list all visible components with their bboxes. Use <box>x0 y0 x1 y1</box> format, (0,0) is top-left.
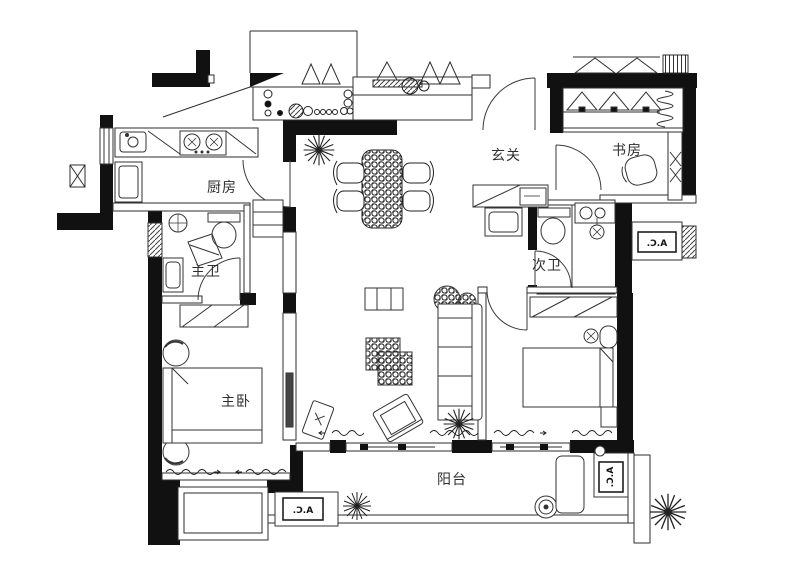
lounge-chair <box>372 393 424 442</box>
dining-chair <box>337 163 364 183</box>
room-label-master-bath: 主卫 <box>191 264 221 280</box>
toilet-icon <box>538 208 570 217</box>
second-bath-fixtures <box>485 203 615 288</box>
dining-chair <box>337 191 364 211</box>
dining-chair <box>403 191 430 211</box>
dining-chair <box>403 163 430 183</box>
side-table <box>302 400 334 439</box>
chair <box>600 326 617 348</box>
plant-icon <box>304 135 335 166</box>
master-bedroom-furniture <box>163 305 262 465</box>
wardrobe <box>530 297 617 317</box>
study-door <box>556 145 601 190</box>
plant-icon <box>343 492 371 520</box>
ac-label-balcony-right: A.C. <box>606 467 616 488</box>
room-label-foyer: 玄关 <box>491 147 521 164</box>
sofa <box>438 304 482 420</box>
floor-plan-canvas: A.C. A.C. A.C. 厨房 玄关 书房 主卫 次卫 主卧 阳台 <box>0 0 800 571</box>
room-label-kitchen: 厨房 <box>207 180 237 196</box>
floor-plan-page: A.C. A.C. A.C. 厨房 玄关 书房 主卫 次卫 主卧 阳台 <box>0 0 800 571</box>
ac-label-right: A.C. <box>647 239 668 249</box>
wardrobe <box>180 305 248 327</box>
entry-door <box>483 78 535 130</box>
plant-icon <box>650 494 686 530</box>
dining-table <box>362 150 402 228</box>
dining-set <box>334 150 434 228</box>
hall-cabinet <box>253 200 283 237</box>
foyer-fixtures <box>473 185 548 207</box>
tv-stand <box>365 288 403 310</box>
balcony-cabinet <box>556 456 584 513</box>
master-bath-fixtures <box>163 200 283 292</box>
toilet-icon <box>208 213 240 222</box>
nightstand <box>601 407 617 427</box>
ac-label-balcony-left: A.C. <box>293 506 314 516</box>
living-room-furniture <box>286 286 482 443</box>
second-bedroom-door <box>487 290 527 330</box>
room-label-study: 书房 <box>612 143 642 159</box>
room-label-balcony: 阳台 <box>437 472 467 488</box>
room-label-second-bath: 次卫 <box>532 258 562 274</box>
plant-icon <box>444 409 475 440</box>
tv-panel <box>286 373 293 427</box>
coffee-table <box>378 352 412 385</box>
room-label-master-bedroom: 主卧 <box>221 394 251 410</box>
second-bedroom-furniture <box>523 297 617 427</box>
